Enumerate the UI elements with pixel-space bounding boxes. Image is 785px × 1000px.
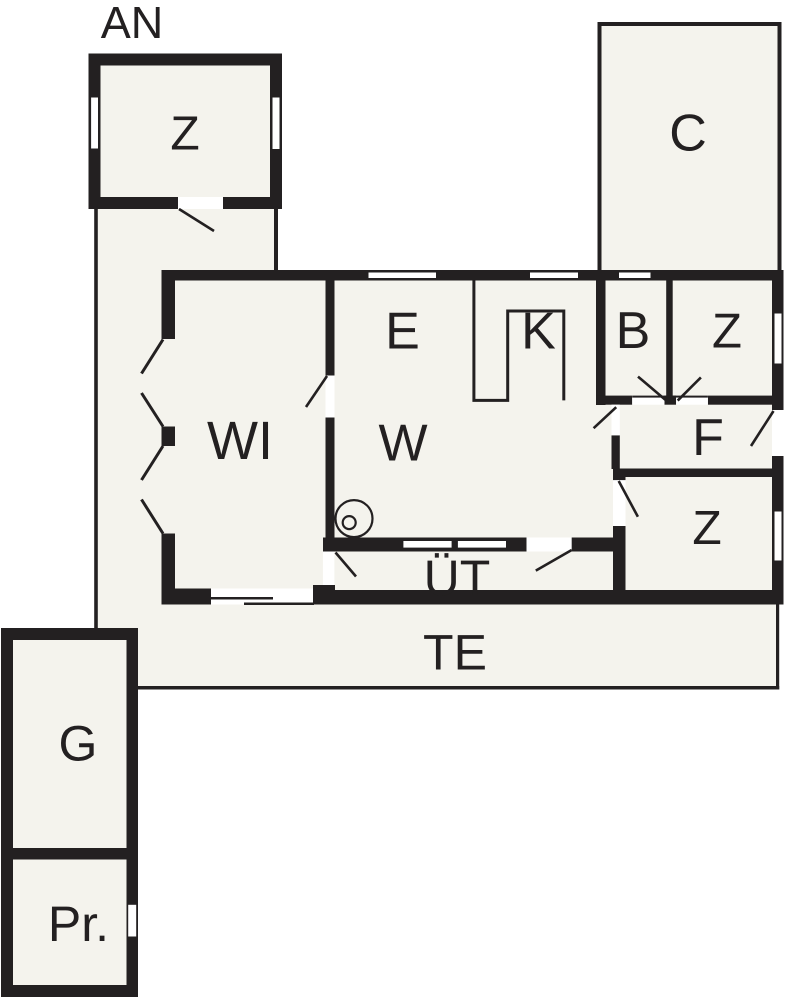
svg-text:TE: TE [423,625,487,681]
svg-text:ÜT: ÜT [424,550,491,606]
svg-text:B: B [616,302,651,360]
svg-text:Pr.: Pr. [48,896,109,952]
svg-text:F: F [692,409,724,467]
svg-text:WI: WI [207,411,273,471]
svg-text:AN: AN [101,0,164,48]
svg-text:Z: Z [712,305,742,359]
svg-text:K: K [521,303,556,361]
svg-text:Z: Z [692,502,721,555]
svg-text:C: C [669,105,707,163]
svg-text:E: E [385,303,420,361]
svg-text:Z: Z [170,108,199,161]
svg-text:G: G [59,716,98,772]
svg-text:W: W [378,415,427,473]
